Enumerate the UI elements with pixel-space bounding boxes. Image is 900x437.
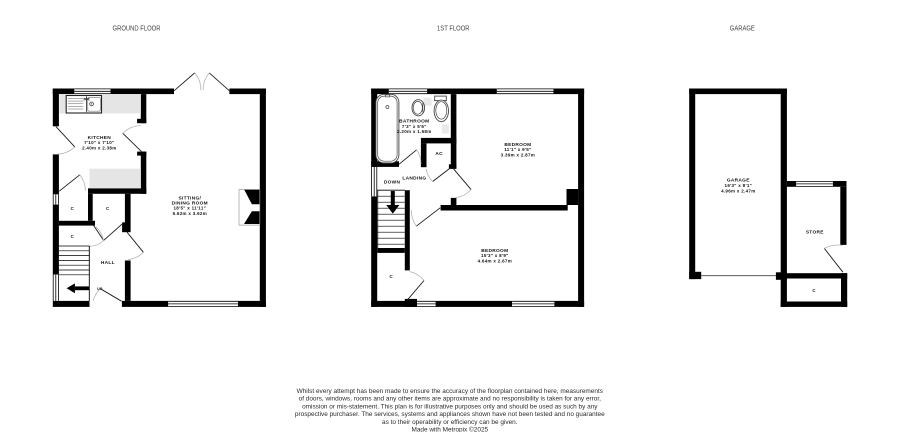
svg-text:5.62m x 3.62m: 5.62m x 3.62m xyxy=(173,211,207,216)
svg-text:GROUND FLOOR: GROUND FLOOR xyxy=(113,25,161,32)
svg-text:HALL: HALL xyxy=(101,260,115,266)
svg-text:3.39m x 2.87m: 3.39m x 2.87m xyxy=(501,152,535,157)
svg-text:omission or mis-statement. Thi: omission or mis-statement. This plan is … xyxy=(302,403,598,410)
svg-text:GARAGE: GARAGE xyxy=(730,25,755,32)
svg-text:SITTING/: SITTING/ xyxy=(178,195,201,201)
svg-text:16'3" x 8'1": 16'3" x 8'1" xyxy=(725,183,753,188)
svg-text:C: C xyxy=(71,234,75,239)
svg-text:as to their operability or eff: as to their operability or efficiency ca… xyxy=(382,419,518,426)
svg-text:C: C xyxy=(106,206,110,211)
svg-text:AC: AC xyxy=(435,151,443,157)
svg-text:1ST FLOOR: 1ST FLOOR xyxy=(437,25,470,32)
svg-text:C: C xyxy=(389,274,393,279)
svg-text:2.40m x 2.38m: 2.40m x 2.38m xyxy=(82,145,116,150)
svg-text:DOWN: DOWN xyxy=(384,180,401,186)
svg-text:4.96m x 2.47m: 4.96m x 2.47m xyxy=(721,189,755,194)
svg-text:of doors, windows, rooms and a: of doors, windows, rooms and any other i… xyxy=(299,396,602,403)
svg-text:4.64m x 2.67m: 4.64m x 2.67m xyxy=(478,258,512,263)
svg-text:STORE: STORE xyxy=(806,229,824,235)
svg-text:LANDING: LANDING xyxy=(402,175,426,181)
svg-text:C: C xyxy=(812,288,816,293)
svg-text:UP: UP xyxy=(97,287,103,291)
svg-text:prospective purchaser. The ser: prospective purchaser. The services, sys… xyxy=(295,411,605,418)
svg-text:C: C xyxy=(71,206,75,211)
svg-text:Made with Metropix ©2025: Made with Metropix ©2025 xyxy=(411,426,488,432)
svg-text:2.20m x 1.68m: 2.20m x 1.68m xyxy=(397,129,431,134)
svg-text:7'3" x 5'6": 7'3" x 5'6" xyxy=(402,124,427,129)
svg-text:Whilst every attempt has been: Whilst every attempt has been made to en… xyxy=(297,388,603,395)
